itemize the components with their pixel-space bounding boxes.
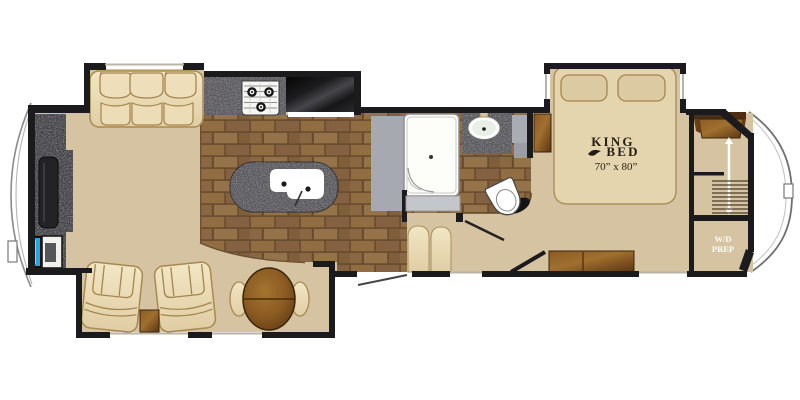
svg-text:W/D: W/D bbox=[715, 234, 732, 244]
svg-text:BED: BED bbox=[606, 144, 639, 159]
svg-text:PREP: PREP bbox=[712, 244, 734, 254]
svg-text:70” x 80”: 70” x 80” bbox=[595, 161, 638, 173]
